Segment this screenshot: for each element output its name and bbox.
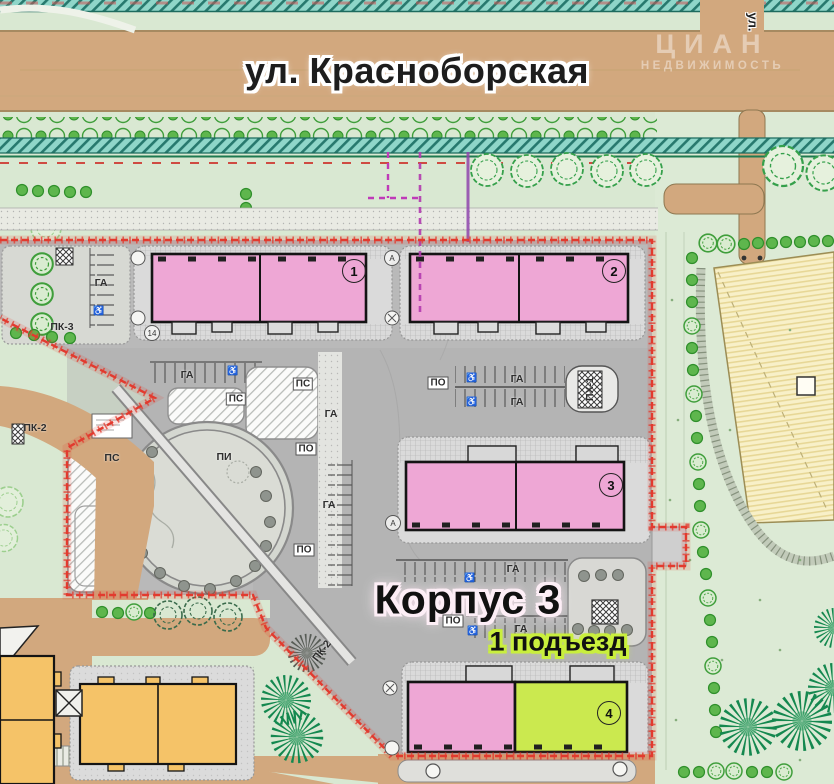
watermark-subtitle: НЕДВИЖИМОСТЬ <box>600 60 825 73</box>
zone-label-ga: ГА <box>511 396 524 408</box>
plan-drawing <box>0 0 834 784</box>
axis-marker-14: 14 <box>144 325 160 341</box>
disabled-parking-icon: ♿ <box>93 306 104 317</box>
zone-label-pk2: ПК-2 <box>23 422 46 434</box>
zone-label-po: ПО <box>443 615 464 628</box>
zone-label-ga: ГА <box>511 373 524 385</box>
zone-label-ps: ПС <box>293 378 313 391</box>
disabled-parking-icon: ♿ <box>466 397 477 408</box>
zone-label-ga: ГА <box>325 408 338 420</box>
site-plan-map[interactable]: ул. Красноборская ул. ЦИАН НЕДВИЖИМОСТЬ … <box>0 0 834 784</box>
zone-label-po: ПО <box>428 377 449 390</box>
pad-south-of-site <box>398 760 636 782</box>
zone-label-ga: ГА <box>181 369 194 381</box>
watermark: ЦИАН НЕДВИЖИМОСТЬ <box>600 30 825 72</box>
zone-label-ga: ГА <box>515 623 528 635</box>
tree-row-street <box>0 117 657 139</box>
zone-label-pk3: ПК-3 <box>50 321 73 333</box>
disabled-parking-icon: ♿ <box>466 373 477 384</box>
zone-label-ga: ГА <box>323 499 336 511</box>
building-4-number: 4 <box>597 701 621 725</box>
building-callout: Корпус 3 <box>375 577 562 624</box>
zone-label-ph1: ПХ-1 <box>584 377 596 401</box>
zone-label-ps: ПС <box>104 452 119 464</box>
axis-marker-a: А <box>385 515 401 531</box>
boundary-notch <box>652 527 686 566</box>
street-name-main: ул. Красноборская <box>245 50 589 92</box>
zone-label-pi: ПИ <box>216 451 231 463</box>
building-3-number: 3 <box>599 473 623 497</box>
axis-marker-a: А <box>384 250 400 266</box>
entrance-callout: 1 подъезд <box>489 627 626 658</box>
building-2-number: 2 <box>602 259 626 283</box>
watermark-brand: ЦИАН <box>600 30 825 60</box>
zone-label-po: ПО <box>294 544 315 557</box>
zone-label-po: ПО <box>296 443 317 456</box>
sidewalk-north <box>0 208 658 230</box>
disabled-parking-icon: ♿ <box>464 573 475 584</box>
building-1-number: 1 <box>342 259 366 283</box>
disabled-parking-icon: ♿ <box>227 366 238 377</box>
disabled-parking-icon: ♿ <box>467 626 478 637</box>
zone-label-ga: ГА <box>507 563 520 575</box>
zone-label-ga: ГА <box>95 277 108 289</box>
zone-label-ps: ПС <box>226 393 246 406</box>
